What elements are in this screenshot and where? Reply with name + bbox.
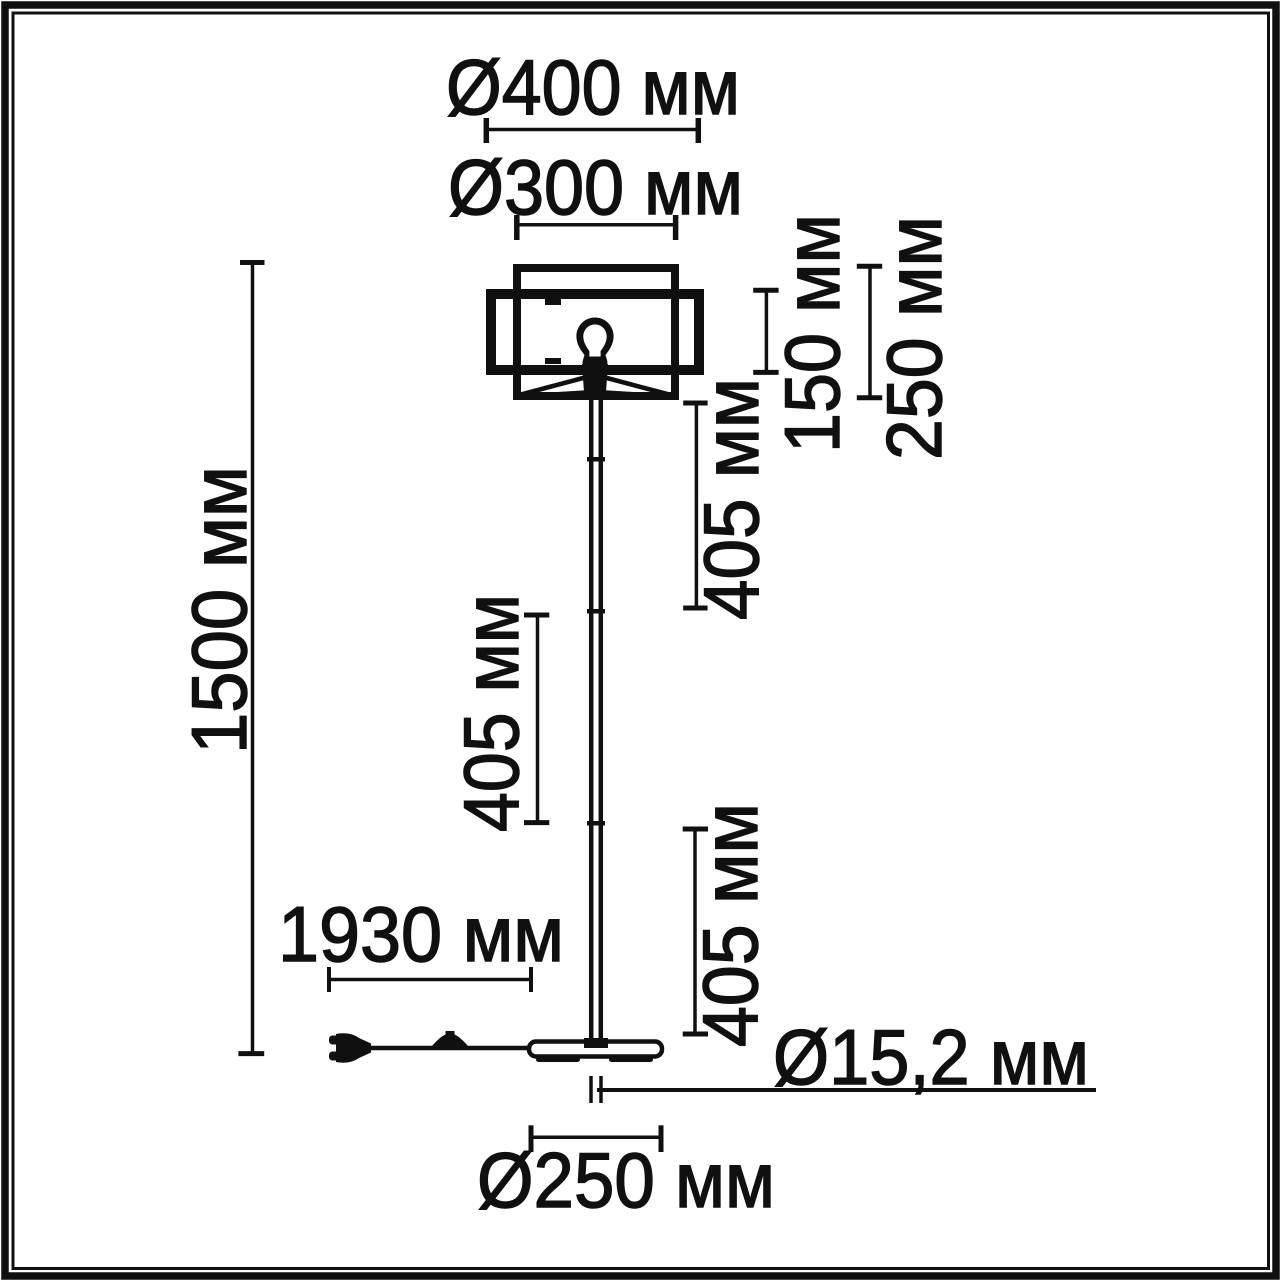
svg-text:Ø15,2 мм: Ø15,2 мм [773,1013,1089,1101]
svg-text:Ø300 мм: Ø300 мм [448,143,743,231]
svg-text:1930 мм: 1930 мм [278,890,564,978]
svg-text:150 мм: 150 мм [768,214,856,453]
svg-text:Ø400 мм: Ø400 мм [446,43,740,131]
svg-text:1500 мм: 1500 мм [175,466,263,754]
svg-text:Ø250 мм: Ø250 мм [477,1136,775,1224]
svg-text:405 мм: 405 мм [687,378,775,620]
svg-text:250 мм: 250 мм [870,216,958,460]
svg-text:405 мм: 405 мм [447,594,535,832]
svg-text:405 мм: 405 мм [686,803,774,1047]
